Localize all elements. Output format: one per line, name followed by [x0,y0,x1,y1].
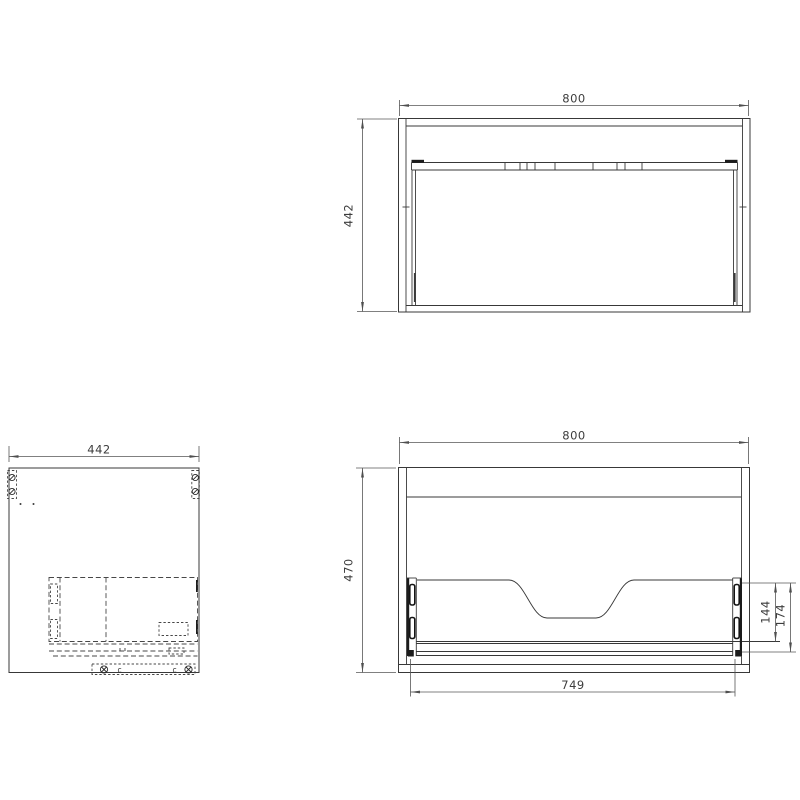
dim-front-height: 470 [342,468,397,673]
bracket-slot [410,585,415,606]
plan-view: 800 442 [342,92,751,313]
left-slide-bracket [407,578,416,657]
screw-slash [10,489,14,493]
dim-plan-depth: 442 [342,119,398,312]
front-view: 800 470 144 174 749 [342,429,797,697]
rear-bracket-mark [196,620,198,634]
bracket-bar [407,578,409,656]
dim-label-plan-width: 800 [562,92,585,106]
screw-slash [10,475,14,479]
rail-corner-bracket [725,160,738,163]
panel-top-with-cutout [417,580,733,618]
dim-label-plan-depth: 442 [342,204,356,227]
cam-mark: c [173,665,177,674]
bracket-slot-hidden [51,620,58,639]
latch-box-hidden [159,623,188,636]
cam-mark: c [118,665,122,674]
dim-plan-width: 800 [400,92,749,117]
bracket-bar [740,578,742,656]
rail-corner-bracket [412,160,425,163]
front-slide-rails [416,644,732,656]
side-view: c c 442 [8,443,200,675]
plan-outer-edge [399,119,751,313]
dim-label-drawer-back-height: 144 [759,600,773,623]
drawer-box-hidden [49,578,198,642]
right-slide-bracket [733,578,742,657]
slide-rear-mark [734,273,736,302]
side-hidden-drawer [49,578,198,642]
dim-side-depth: 442 [9,443,199,463]
slide-rear-mark [414,273,416,302]
screw-slash [193,489,197,493]
screw-slash [193,475,197,479]
side-mount-screws-front [192,471,200,499]
dim-label-drawer-total-height: 174 [774,604,788,627]
bracket-slot [734,618,739,639]
bracket-slot [410,618,415,639]
dim-drawer-back-height: 144 [742,583,796,642]
technical-drawing-canvas: 800 442 [0,0,800,800]
pilot-hole-dot [33,503,35,505]
plan-back-rail [412,160,738,170]
drawer-back-panel [417,580,781,642]
bracket-foot [408,650,414,657]
dim-label-front-height: 470 [342,558,356,581]
bracket-slot-hidden [51,584,58,604]
dim-label-side-depth: 442 [87,443,110,457]
bracket-slot [734,585,739,606]
bracket-foot [735,650,741,657]
dim-label-front-width: 800 [562,429,585,443]
plan-drawer-sides [403,170,747,306]
pilot-hole-dot [20,503,22,505]
dim-front-width: 800 [400,429,749,465]
rear-bracket-mark [196,580,198,592]
side-hidden-slides [49,644,198,656]
dim-label-inner-width: 749 [561,678,584,692]
